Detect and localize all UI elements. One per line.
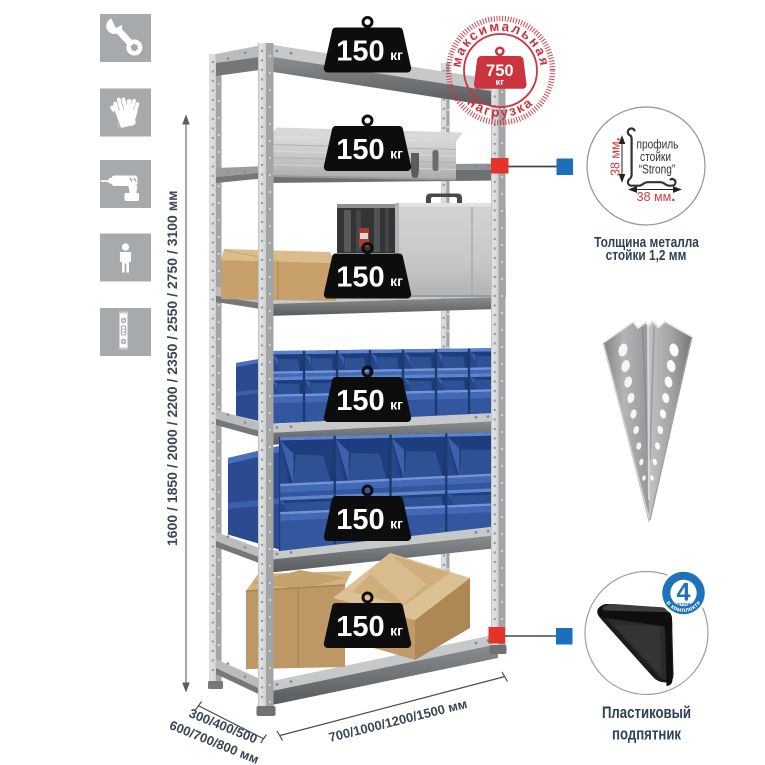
- svg-text:стойки 1,2 мм: стойки 1,2 мм: [606, 247, 687, 263]
- svg-text:1600 / 1850 / 2000 / 2200 / 23: 1600 / 1850 / 2000 / 2200 / 2350 / 2550 …: [164, 191, 180, 546]
- svg-text:кг: кг: [390, 397, 403, 413]
- svg-text:“Strong”: “Strong”: [639, 162, 676, 176]
- svg-text:штуки: штуки: [677, 602, 691, 607]
- svg-text:кг: кг: [390, 146, 403, 162]
- svg-text:150: 150: [336, 134, 384, 166]
- svg-text:150: 150: [336, 504, 384, 536]
- svg-text:700/1000/1200/1500 мм: 700/1000/1200/1500 мм: [327, 696, 469, 745]
- svg-text:38 мм.: 38 мм.: [607, 137, 624, 176]
- svg-text:150: 150: [336, 385, 384, 417]
- svg-text:150: 150: [336, 36, 384, 68]
- svg-text:кг: кг: [390, 623, 403, 639]
- svg-text:Пластиковый: Пластиковый: [602, 704, 691, 723]
- svg-text:кг: кг: [390, 516, 403, 532]
- svg-text:кг: кг: [390, 273, 403, 289]
- svg-text:38 мм.: 38 мм.: [637, 188, 676, 205]
- svg-text:подпятник: подпятник: [612, 725, 682, 744]
- svg-text:150: 150: [336, 262, 384, 294]
- svg-text:кг: кг: [390, 47, 403, 63]
- svg-text:кг: кг: [495, 77, 504, 88]
- svg-text:150: 150: [336, 611, 384, 643]
